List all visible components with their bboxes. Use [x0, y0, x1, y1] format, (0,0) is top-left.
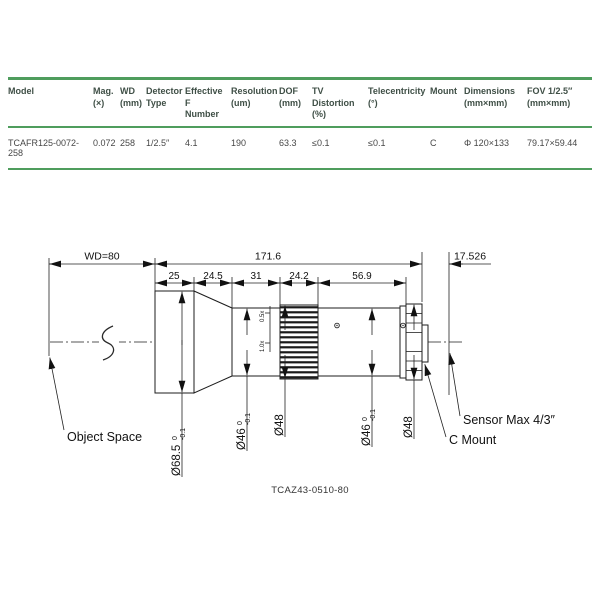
col-fov: FOV 1/2.5″(mm×mm)	[527, 80, 592, 126]
col-resolution: Resolution(um)	[231, 80, 279, 126]
col-magnification: Mag.(×)	[93, 80, 120, 126]
svg-text:Ø48: Ø48	[403, 416, 415, 438]
col-tv-distortion: TV Distortion(%)	[312, 80, 368, 126]
svg-text:C Mount: C Mount	[449, 433, 497, 447]
svg-text:171.6: 171.6	[255, 251, 281, 263]
table-header-row: Model Mag.(×) WD(mm) DetectorType Effect…	[8, 80, 592, 126]
rear-thin-ring	[400, 306, 406, 378]
lens-barrel-1	[232, 308, 280, 376]
svg-text:Ø46: Ø46	[236, 428, 248, 450]
cell-resolution: 190	[231, 128, 279, 168]
svg-text:Ø48: Ø48	[274, 414, 286, 436]
dimension-wd: WD=80	[49, 251, 155, 265]
svg-text:Object Space: Object Space	[67, 430, 142, 444]
cell-working-distance: 258	[120, 128, 146, 168]
c-mount-callout: C Mount	[425, 364, 497, 447]
svg-text:56.9: 56.9	[352, 271, 372, 282]
svg-text:0: 0	[362, 417, 369, 421]
drawing-caption: TCAZ43-0510-80	[271, 485, 349, 496]
cell-detector-type: 1/2.5″	[146, 128, 185, 168]
spec-table: Model Mag.(×) WD(mm) DetectorType Effect…	[8, 77, 592, 170]
cell-tv-distortion: ≤0.1	[312, 128, 368, 168]
segment-dimensions: 25 24.5 31 24.2 56.9	[155, 271, 406, 283]
svg-text:Sensor Max 4/3″: Sensor Max 4/3″	[463, 413, 556, 427]
sensor-max-callout: Sensor Max 4/3″	[450, 353, 556, 427]
focus-ring	[280, 305, 318, 379]
col-dof: DOF(mm)	[279, 80, 312, 126]
set-screw-2	[401, 323, 406, 328]
svg-text:0.5x: 0.5x	[260, 311, 266, 322]
table-bottom-rule	[8, 168, 592, 170]
set-screw-1	[335, 323, 340, 328]
lens-body	[155, 291, 428, 393]
svg-text:Ø68.5: Ø68.5	[171, 445, 183, 476]
svg-text:24.2: 24.2	[289, 271, 309, 282]
svg-text:0: 0	[172, 436, 179, 440]
svg-text:17.526: 17.526	[454, 251, 486, 263]
c-mount-thread	[422, 325, 428, 362]
svg-text:31: 31	[250, 271, 262, 282]
cell-fov: 79.17×59.44	[527, 128, 592, 168]
cell-dimensions: Φ 120×133	[464, 128, 527, 168]
cell-model: TCAFR125-0072-258	[8, 128, 93, 168]
dimension-flange-distance: 17.526	[449, 251, 491, 265]
svg-text:0: 0	[237, 421, 244, 425]
cell-dof: 63.3	[279, 128, 312, 168]
col-telecentricity: Telecentricity(°)	[368, 80, 430, 126]
svg-text:WD=80: WD=80	[84, 251, 119, 263]
object-space-callout: Object Space	[50, 358, 142, 445]
lens-cone	[194, 291, 232, 393]
cell-telecentricity: ≤0.1	[368, 128, 430, 168]
svg-text:-0.1: -0.1	[245, 413, 252, 425]
col-f-number: Effective FNumber	[185, 80, 231, 126]
lens-front-cylinder	[155, 291, 194, 393]
svg-text:-0.1: -0.1	[370, 409, 377, 421]
cell-f-number: 4.1	[185, 128, 231, 168]
svg-text:25: 25	[168, 271, 180, 282]
col-model: Model	[8, 80, 93, 126]
col-mount: Mount	[430, 80, 464, 126]
lens-technical-drawing: WD=80 171.6 17.526 25 24.5	[0, 235, 600, 505]
table-data-row: TCAFR125-0072-258 0.072 258 1/2.5″ 4.1 1…	[8, 128, 592, 168]
lens-datasheet-page: Model Mag.(×) WD(mm) DetectorType Effect…	[0, 0, 600, 600]
cell-magnification: 0.072	[93, 128, 120, 168]
svg-text:Ø46: Ø46	[361, 424, 373, 446]
dimension-total-length: 171.6	[155, 251, 422, 265]
lens-barrel-2	[318, 308, 400, 376]
svg-text:24.5: 24.5	[203, 271, 223, 282]
col-working-distance: WD(mm)	[120, 80, 146, 126]
col-dimensions: Dimensions(mm×mm)	[464, 80, 527, 126]
svg-text:1.0x: 1.0x	[260, 341, 266, 352]
cell-mount: C	[430, 128, 464, 168]
col-detector-type: DetectorType	[146, 80, 185, 126]
svg-text:-0.1: -0.1	[180, 428, 187, 440]
